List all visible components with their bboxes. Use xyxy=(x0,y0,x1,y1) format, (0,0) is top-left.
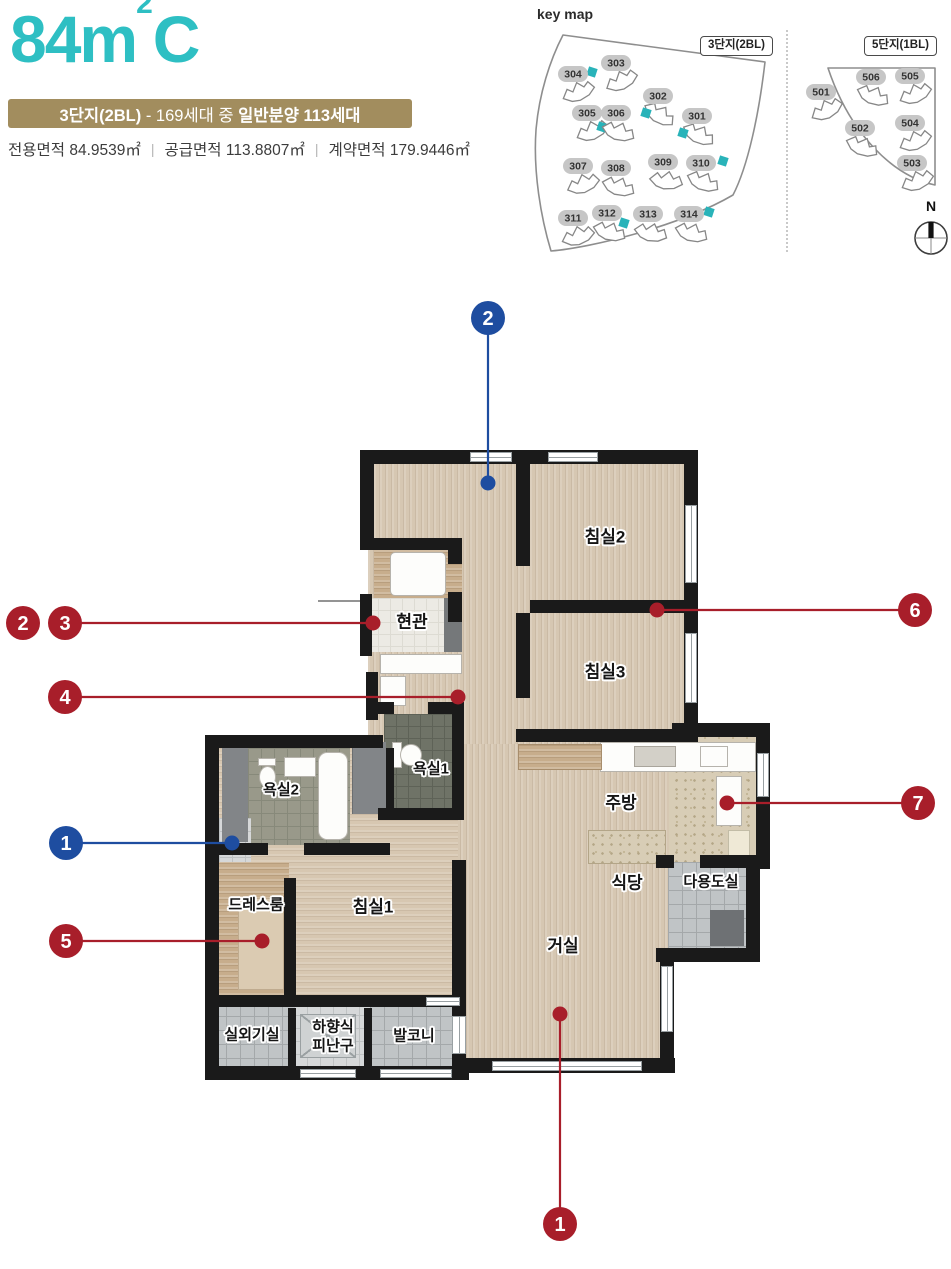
room-label-bath2: 욕실2 xyxy=(263,782,299,801)
room-label-living: 거실 xyxy=(547,935,578,956)
room-label-dining: 식당 xyxy=(611,872,642,893)
room-label-escape-hatch: 하향식 피난구 xyxy=(312,1018,353,1056)
room-label-ac-room: 실외기실 xyxy=(224,1027,279,1046)
room-label-utility: 다용도실 xyxy=(683,874,738,893)
room-label-bedroom3: 침실3 xyxy=(585,661,626,682)
room-label-dressroom: 드레스룸 xyxy=(228,897,283,916)
room-label-bedroom1: 침실1 xyxy=(353,896,394,917)
room-labels: 침실2침실3현관욕실1욕실2드레스룸침실1주방식당다용도실거실실외기실하향식 피… xyxy=(0,0,951,1269)
room-label-kitchen: 주방 xyxy=(605,792,636,813)
room-label-bath1: 욕실1 xyxy=(413,761,449,780)
room-label-balcony: 발코니 xyxy=(393,1028,434,1047)
room-label-entrance: 현관 xyxy=(396,611,427,632)
floor-plan: 침실2침실3현관욕실1욕실2드레스룸침실1주방식당다용도실거실실외기실하향식 피… xyxy=(0,0,951,1269)
page: 84m2C 3단지(2BL) - 169세대 중 일반분양 113세대 전용면적… xyxy=(0,0,951,1269)
room-label-bedroom2: 침실2 xyxy=(585,526,626,547)
